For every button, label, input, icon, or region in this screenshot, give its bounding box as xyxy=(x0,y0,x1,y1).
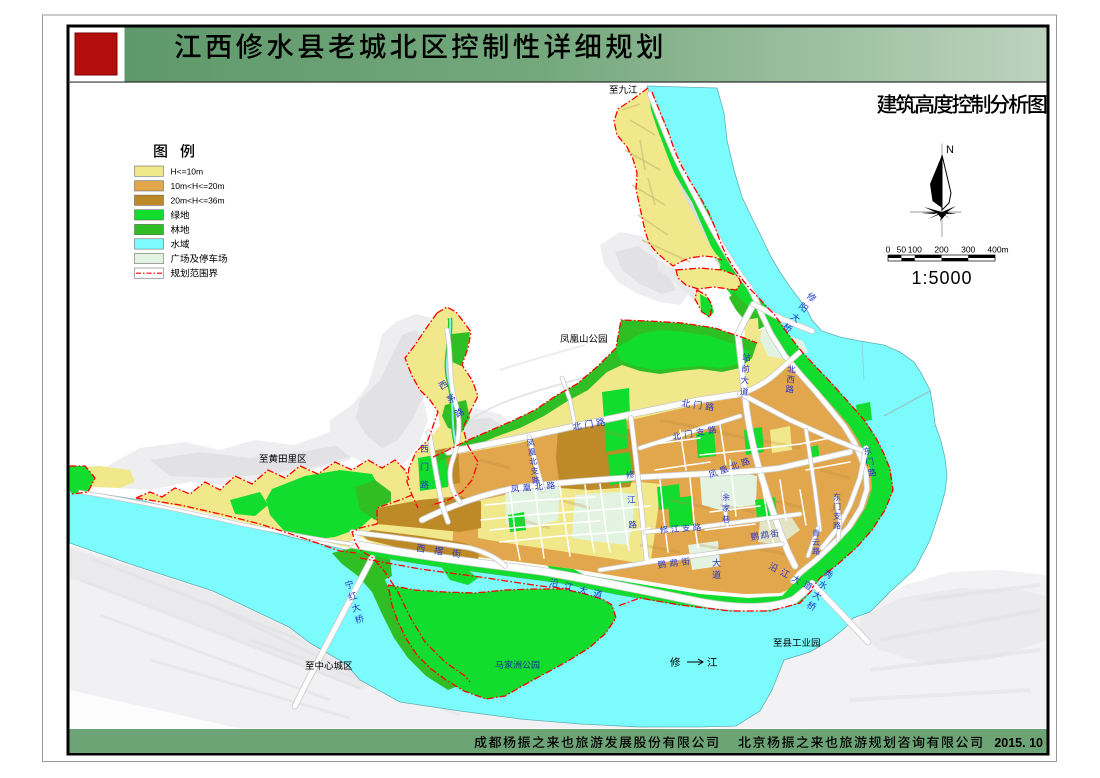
svg-text:1:5000: 1:5000 xyxy=(911,268,972,288)
svg-text:200: 200 xyxy=(934,245,948,255)
svg-text:100: 100 xyxy=(908,245,922,255)
svg-text:2015. 10: 2015. 10 xyxy=(994,736,1043,750)
svg-text:50: 50 xyxy=(897,245,907,255)
svg-text:N: N xyxy=(946,144,954,156)
svg-text:400m: 400m xyxy=(987,245,1008,255)
svg-text:20m<H<=36m: 20m<H<=36m xyxy=(171,196,225,206)
svg-text:10m<H<=20m: 10m<H<=20m xyxy=(171,181,225,191)
svg-text:H<=10m: H<=10m xyxy=(171,167,204,177)
svg-text:300: 300 xyxy=(961,245,975,255)
svg-text:0: 0 xyxy=(886,245,891,255)
